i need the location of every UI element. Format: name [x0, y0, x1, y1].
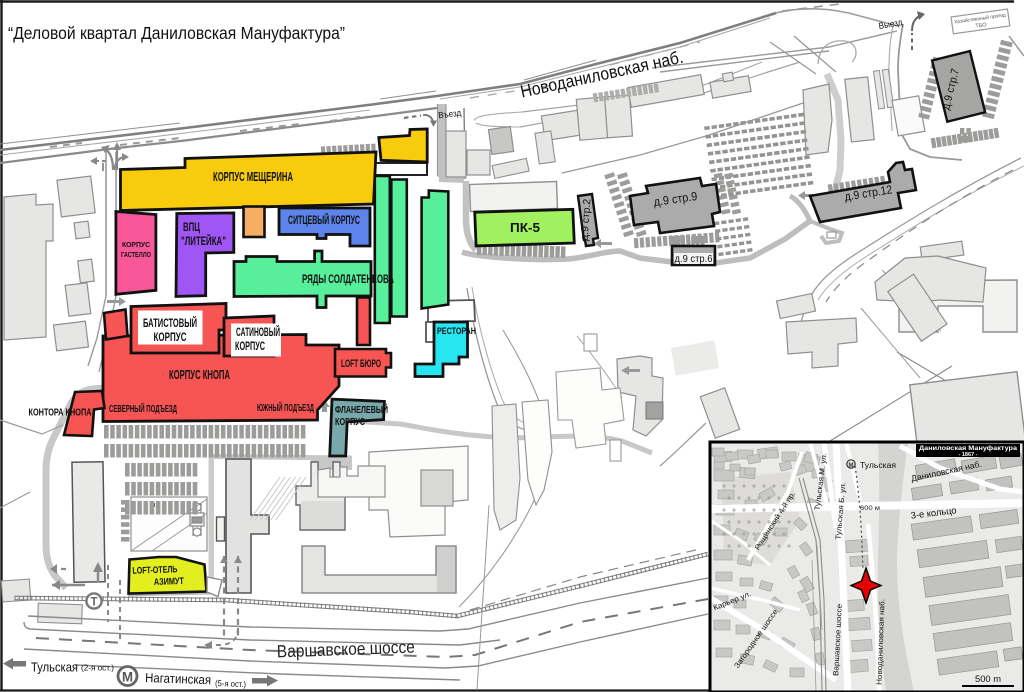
svg-text:"ЛИТЕЙКА": "ЛИТЕЙКА" — [181, 233, 226, 248]
svg-text:- 1867 -: - 1867 - — [959, 452, 978, 458]
svg-text:ФЛАНЕЛЕВЫЙ: ФЛАНЕЛЕВЫЙ — [335, 403, 388, 416]
svg-text:РЕСТОРАН: РЕСТОРАН — [437, 326, 476, 337]
svg-text:Тульская: Тульская — [860, 461, 896, 470]
svg-text:КОРПУС: КОРПУС — [335, 416, 365, 428]
svg-text:АЗИМУТ: АЗИМУТ — [154, 576, 185, 588]
svg-text:КОРПУС МЕЩЕРИНА: КОРПУС МЕЩЕРИНА — [213, 169, 293, 184]
svg-text:ЮЖНЫЙ ПОДЪЕЗД: ЮЖНЫЙ ПОДЪЕЗД — [257, 401, 314, 414]
svg-text:САТИНОВЫЙ: САТИНОВЫЙ — [236, 324, 280, 339]
svg-text:д.9 стр.6: д.9 стр.6 — [675, 253, 713, 265]
svg-text:КОРПУС КНОПА: КОРПУС КНОПА — [169, 367, 230, 382]
svg-text:КОРПУС: КОРПУС — [154, 330, 187, 344]
svg-text:600 м: 600 м — [860, 505, 881, 512]
svg-text:Нагатинская: Нагатинская — [145, 670, 211, 687]
svg-text:LOFT БЮРО: LOFT БЮРО — [341, 358, 381, 370]
svg-text:КОРПУС: КОРПУС — [122, 240, 151, 249]
svg-text:ГАСТЕЛЛО: ГАСТЕЛЛО — [121, 250, 151, 259]
svg-text:СИТЦЕВЫЙ КОРПУС: СИТЦЕВЫЙ КОРПУС — [288, 214, 360, 227]
svg-text:М: М — [849, 463, 854, 469]
svg-text:ПК-5: ПК-5 — [510, 220, 540, 235]
svg-text:500 m: 500 m — [975, 674, 1001, 684]
svg-text:БАТИСТОВЫЙ: БАТИСТОВЫЙ — [143, 315, 197, 330]
svg-text:LOFT-ОТЕЛЬ: LOFT-ОТЕЛЬ — [132, 564, 177, 577]
svg-text:(2-я ост.): (2-я ост.) — [81, 663, 114, 673]
svg-text:СЕВЕРНЫЙ ПОДЪЕЗД: СЕВЕРНЫЙ ПОДЪЕЗД — [109, 402, 177, 415]
svg-text:ВПЦ: ВПЦ — [183, 220, 200, 234]
svg-text:КОРПУС: КОРПУС — [235, 339, 265, 353]
svg-text:РЯДЫ СОЛДАТЕНКОВА: РЯДЫ СОЛДАТЕНКОВА — [302, 272, 394, 286]
svg-text:“Деловой квартал Даниловская М: “Деловой квартал Даниловская Мануфактура… — [8, 23, 345, 43]
svg-text:М: М — [122, 669, 133, 685]
svg-text:Даниловская Мануфактура: Даниловская Мануфактура — [919, 445, 1018, 452]
svg-text:(5-я ост.): (5-я ост.) — [215, 678, 246, 689]
svg-text:Тульская: Тульская — [31, 660, 78, 675]
svg-text:Т: Т — [90, 597, 97, 609]
svg-text:КОНТОРА КНОПА: КОНТОРА КНОПА — [29, 408, 92, 419]
